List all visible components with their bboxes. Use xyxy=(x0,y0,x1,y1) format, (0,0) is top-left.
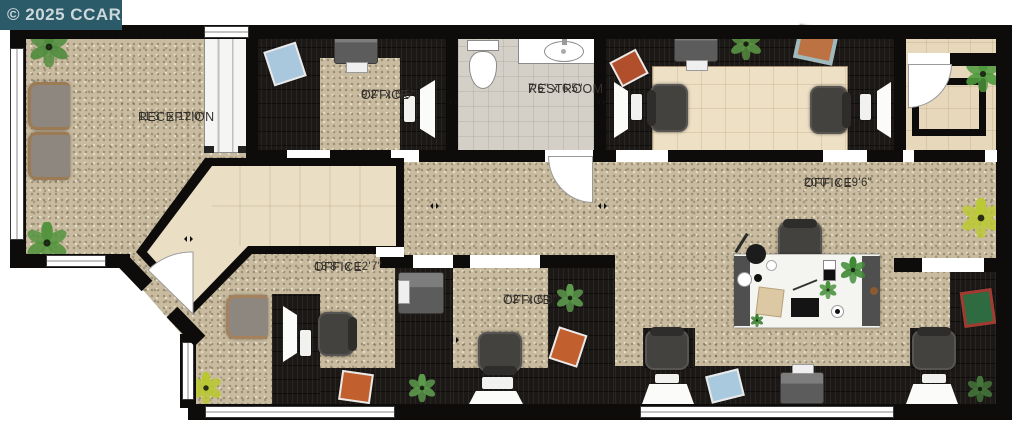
book-icon xyxy=(338,370,374,404)
room-dims: 20'0" x 19'6" xyxy=(804,176,872,190)
wall-vestibule-left xyxy=(894,27,906,162)
room-dims: 7'2" x 6'8" xyxy=(503,293,558,307)
dimension-marker xyxy=(450,337,459,342)
office-chair xyxy=(650,84,688,132)
laptop-icon xyxy=(791,298,819,317)
monitor-icon xyxy=(906,384,958,404)
plant-icon xyxy=(819,281,837,299)
book-icon xyxy=(960,288,997,328)
monitor-icon xyxy=(614,82,628,138)
monitor-icon xyxy=(420,80,435,138)
door-opening xyxy=(287,150,330,162)
wall-reception-right xyxy=(246,27,258,160)
plant-icon xyxy=(966,376,994,402)
door-opening xyxy=(376,247,404,257)
desk-lamp-icon xyxy=(746,244,766,264)
wall-vestibule-stub xyxy=(948,53,1004,66)
dimension-marker xyxy=(184,236,193,241)
printer-tray xyxy=(346,62,368,73)
window xyxy=(10,48,24,240)
desk-panel xyxy=(734,256,750,326)
printer-tray xyxy=(398,280,410,304)
phone-icon xyxy=(823,260,836,281)
office-chair xyxy=(810,86,848,134)
reception-chair xyxy=(28,132,70,180)
monitor-icon xyxy=(642,384,694,404)
cabinet xyxy=(204,27,248,153)
plant-icon xyxy=(750,314,764,327)
keyboard-icon xyxy=(482,377,513,389)
office-chair xyxy=(912,330,956,370)
printer-icon xyxy=(780,372,824,404)
plant-icon xyxy=(408,374,436,402)
bowl xyxy=(766,260,777,271)
door-opening xyxy=(413,255,453,268)
wall-right xyxy=(996,25,1012,420)
floor-plan: RECEPTION 11'3" x 12'0" OFFICE 9'2" x 6'… xyxy=(0,0,1024,434)
keyboard-icon xyxy=(300,330,311,356)
monitor-icon xyxy=(283,306,297,362)
desk-knob xyxy=(870,287,878,295)
window xyxy=(205,406,395,418)
drain xyxy=(561,49,566,54)
door-opening xyxy=(903,150,914,162)
window xyxy=(640,406,894,418)
reception-chair xyxy=(28,82,70,130)
room-dims: 7'6" x 6'5" xyxy=(528,82,583,96)
door-opening xyxy=(616,150,668,162)
cup xyxy=(754,274,762,282)
door-opening xyxy=(985,150,997,162)
wall-restroom-left xyxy=(446,27,458,162)
office-chair xyxy=(645,330,689,370)
room-dims: 13'8" x 12'7" xyxy=(314,260,382,274)
dimension-marker xyxy=(430,203,439,208)
coffee xyxy=(835,309,840,314)
monitor-icon xyxy=(877,82,891,138)
notebook xyxy=(755,287,784,318)
window xyxy=(204,26,249,38)
door-opening xyxy=(470,255,540,268)
watermark-text: © 2025 CCAR xyxy=(7,0,121,30)
window xyxy=(46,255,106,267)
office-chair xyxy=(478,332,522,372)
guest-chair xyxy=(226,295,268,339)
keyboard-icon xyxy=(860,94,871,120)
cabinet-corner xyxy=(204,146,214,153)
keyboard-icon xyxy=(631,94,642,120)
watermark: © 2025 CCAR xyxy=(0,0,122,30)
door-opening xyxy=(922,258,984,272)
room-dims: 11'3" x 12'0" xyxy=(138,110,205,124)
copier-tray xyxy=(686,60,708,71)
office-chair xyxy=(318,312,354,356)
keyboard-icon xyxy=(655,374,679,383)
toilet-tank xyxy=(467,40,499,51)
keyboard-icon xyxy=(922,374,946,383)
printer-tray xyxy=(792,364,814,374)
plant-icon xyxy=(840,256,866,284)
dimension-marker xyxy=(598,203,607,208)
saucer xyxy=(737,272,752,287)
dimension-marker xyxy=(449,99,458,104)
door-opening xyxy=(823,150,867,162)
dimension-marker xyxy=(597,99,606,104)
window xyxy=(182,342,194,400)
wall-top xyxy=(10,25,1012,39)
door-opening xyxy=(391,150,419,162)
room-dims: 9'2" x 6'5" xyxy=(361,88,416,102)
plant-icon xyxy=(556,284,584,312)
